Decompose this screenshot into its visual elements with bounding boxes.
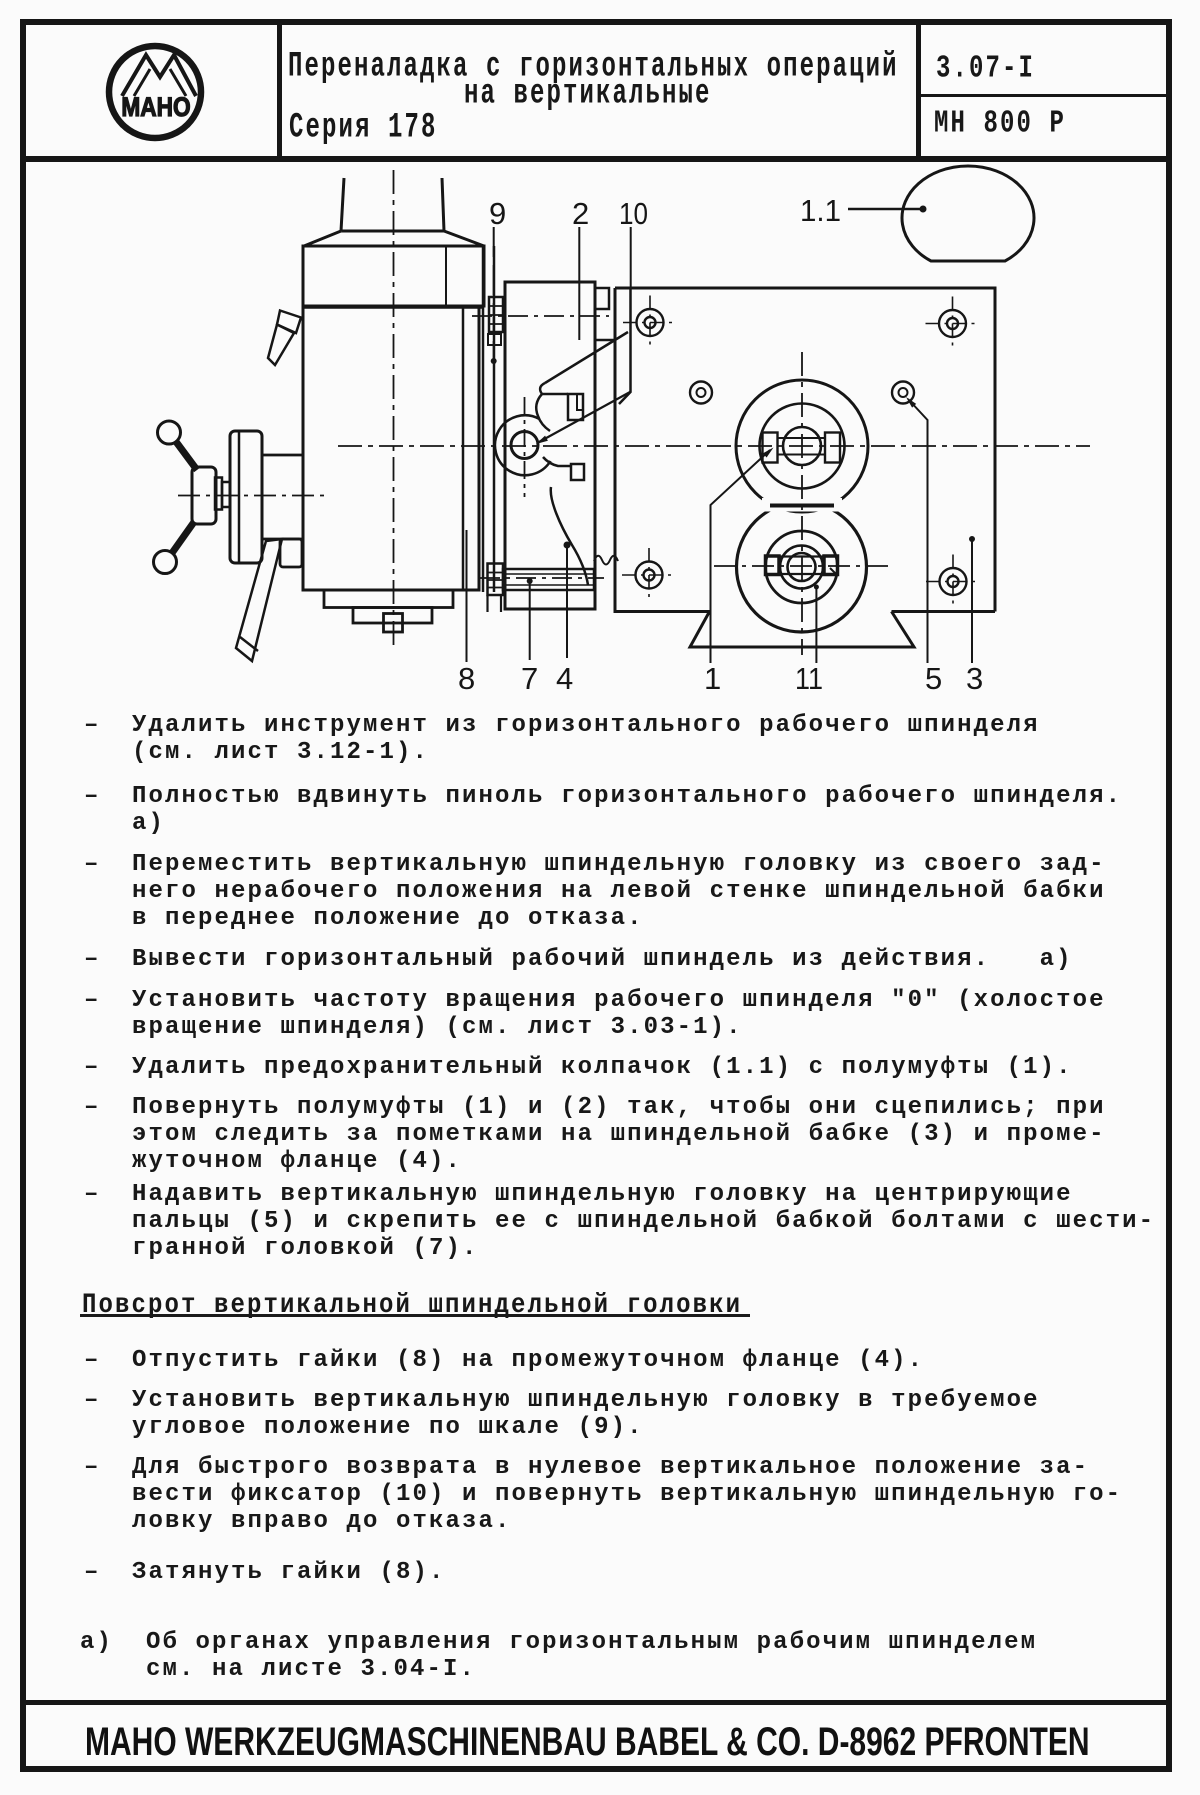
svg-text:3: 3 <box>966 661 983 696</box>
svg-text:9: 9 <box>489 196 506 231</box>
svg-text:10: 10 <box>619 196 648 231</box>
svg-text:2: 2 <box>572 196 589 231</box>
svg-text:5: 5 <box>925 661 942 696</box>
svg-text:11: 11 <box>795 661 823 696</box>
svg-text:7: 7 <box>521 661 538 696</box>
svg-text:8: 8 <box>458 661 475 696</box>
svg-text:4: 4 <box>556 661 573 696</box>
svg-text:1.1: 1.1 <box>800 193 841 228</box>
svg-text:1: 1 <box>704 661 721 696</box>
svg-text:MAHO: MAHO <box>121 92 190 122</box>
